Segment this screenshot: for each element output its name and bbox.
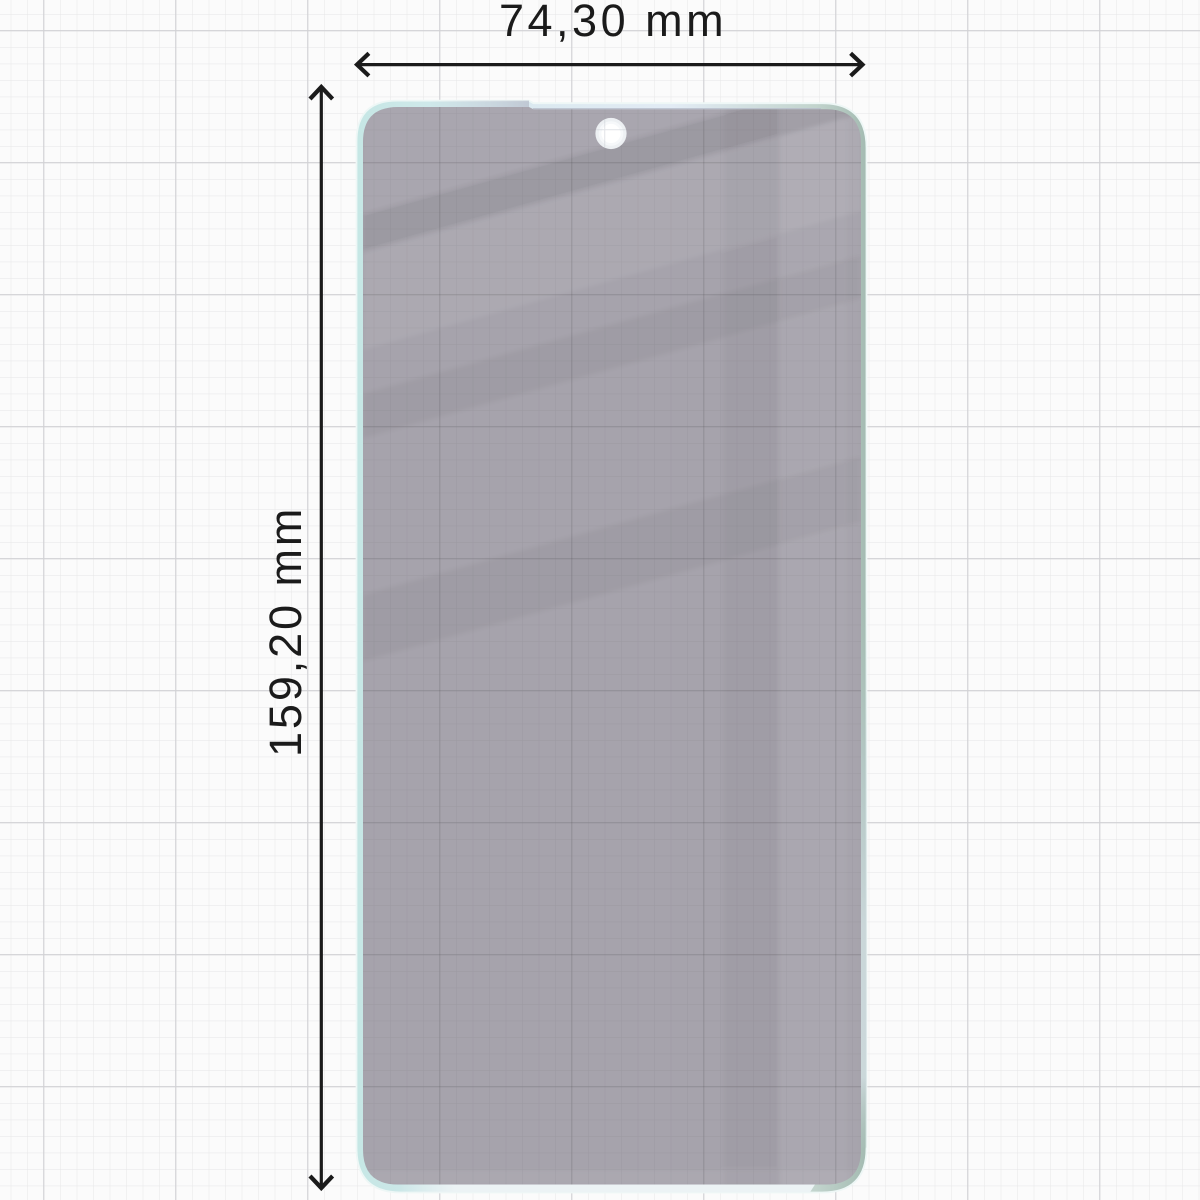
svg-text:159,20 mm: 159,20 mm xyxy=(260,506,311,757)
svg-text:74,30 mm: 74,30 mm xyxy=(499,0,727,46)
